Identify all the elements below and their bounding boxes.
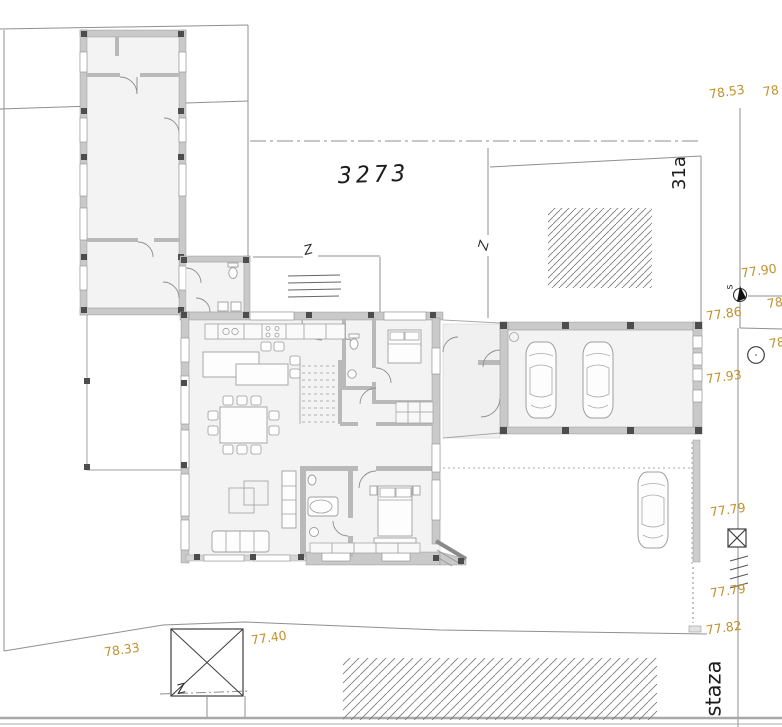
car-icon: [638, 472, 668, 548]
house-number-label: 31a: [671, 155, 689, 191]
closet-row: [310, 543, 420, 553]
windows: [693, 336, 702, 402]
kitchen-counter: [205, 324, 345, 339]
bathtub-icon: [308, 497, 338, 516]
spot-height-label: 78: [768, 336, 782, 351]
crossed-square-icon-right: [728, 529, 746, 547]
pergola-outline: [84, 315, 181, 470]
toilet-icon: [349, 334, 359, 349]
toilet-icon: [228, 263, 238, 279]
parcel-number-label: 3273: [338, 161, 410, 189]
trellis-lines: [288, 275, 341, 297]
washer-icon: [218, 302, 228, 311]
car-icon: [583, 342, 613, 418]
bed-icon: [388, 330, 421, 363]
manhole-icon: [748, 347, 765, 364]
benchmark-letter: s: [726, 284, 736, 289]
path-label: staza: [704, 665, 725, 717]
site-plan: 3273 31a staza s 78.53 78 77.90 77.86 78…: [0, 0, 782, 727]
car-icon: [526, 342, 556, 418]
entry-porch: [443, 320, 502, 438]
wardrobe: [396, 402, 433, 423]
dryer-icon: [231, 302, 241, 311]
sofa-icon: [212, 531, 269, 552]
boundary-wall-strip: [689, 440, 701, 632]
spot-height-label: 78: [762, 84, 779, 99]
left-wing-building: [80, 30, 186, 315]
plan-drawing: [0, 0, 782, 727]
utility-room: [180, 256, 250, 318]
sink-icon: [310, 528, 319, 537]
toilet-icon: [308, 475, 316, 485]
hatched-area-bottom: [343, 658, 657, 720]
hatched-area-top: [548, 208, 652, 288]
shelf-unit: [282, 471, 296, 528]
sink-icon: [348, 370, 356, 378]
spot-height-label: 78: [766, 296, 782, 311]
